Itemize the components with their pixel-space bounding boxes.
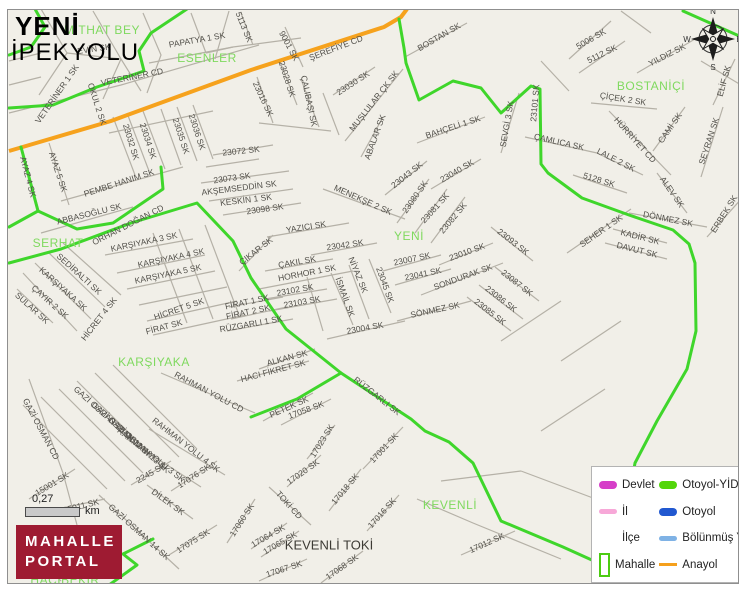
scale-unit-label: km (85, 505, 100, 517)
devlet-line-swatch (599, 481, 617, 489)
anayol-line-swatch (659, 563, 677, 566)
district-label: YENİ (394, 230, 424, 242)
legend-label: Otoyol (682, 506, 715, 518)
legend-item: Anayol (659, 552, 739, 579)
ilce-swatch (599, 534, 617, 542)
compass-n-label: N (710, 9, 716, 16)
legend-item: İlçe (599, 525, 655, 552)
legend-label: Anayol (682, 559, 717, 571)
legend-label: Otoyol-YİD (682, 479, 738, 491)
scale-bar (25, 507, 80, 517)
legend-item: Otoyol-YİD (659, 472, 739, 499)
bolunmus-yol-line-swatch (659, 536, 677, 541)
otoyol-line-swatch (659, 508, 677, 516)
scale-distance-value: 0,27 (32, 493, 53, 505)
legend-item: Otoyol (659, 499, 739, 526)
mahalle-rect-swatch (599, 553, 610, 577)
legend-label: Bölünmüş Y (682, 532, 739, 544)
legend-column-left: DevletİlİlçeMahalle (599, 472, 655, 578)
logo-line-1: MAHALLE (25, 532, 122, 552)
map-title: YENİ İPEKYOLU (11, 13, 139, 67)
legend-label: Devlet (622, 479, 655, 491)
legend-label: İl (622, 506, 628, 518)
map-canvas[interactable]: N E S W YENİ İPEKYOLU 0,27 km MAHALLE PO… (7, 9, 739, 584)
district-label: SERHAT (33, 237, 84, 249)
compass-s-label: S (710, 63, 715, 72)
legend-label: İlçe (622, 532, 640, 544)
map-legend: DevletİlİlçeMahalle Otoyol-YİDOtoyolBölü… (591, 466, 739, 583)
district-label: ESENLER (177, 52, 237, 64)
otoyol-yid-line-swatch (659, 481, 677, 489)
district-title-secondary: İPEKYOLU (11, 40, 139, 66)
district-label: BOSTANİÇİ (617, 80, 685, 92)
compass-e-label: E (736, 35, 739, 44)
legend-item: Bölünmüş Y (659, 525, 739, 552)
legend-item: Devlet (599, 472, 655, 499)
place-label: KEVENLİ TOKİ (285, 539, 373, 552)
legend-item: Mahalle (599, 552, 655, 579)
district-label: KEVENLİ (423, 499, 477, 511)
compass-w-label: W (683, 35, 691, 44)
logo-line-2: PORTAL (25, 552, 122, 572)
district-label: KARŞIYAKA (118, 356, 190, 368)
il-line-swatch (599, 509, 617, 514)
district-title-primary: YENİ (15, 13, 139, 40)
map-world: N E S W YENİ İPEKYOLU 0,27 km MAHALLE PO… (7, 9, 739, 584)
legend-column-right: Otoyol-YİDOtoyolBölünmüş YAnayol (659, 472, 739, 578)
legend-item: İl (599, 499, 655, 526)
legend-label: Mahalle (615, 559, 655, 571)
mahalle-portal-logo: MAHALLE PORTAL (16, 525, 122, 579)
